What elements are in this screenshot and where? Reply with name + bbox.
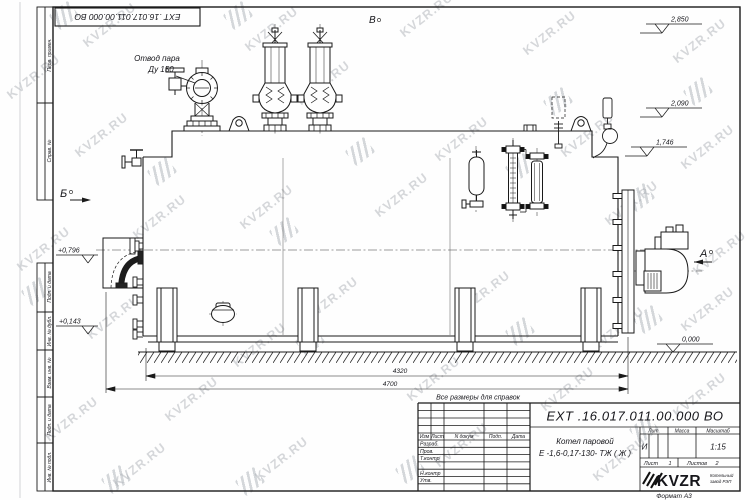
water-level-gauge [502, 140, 524, 219]
elevation-value: 2,090 [670, 101, 689, 108]
steam-outlet-label: Отвод пара Ду 150 [134, 54, 195, 83]
steam-outlet-valve [166, 68, 220, 131]
frame-side-labels: Перв. примен. Справ. № Подп. и дата Инв.… [47, 38, 53, 482]
brand-subtitle: завод РЭП [709, 479, 732, 484]
manhole [212, 303, 235, 323]
sight-vessel [462, 150, 484, 208]
side-label: Инв. № подл. [47, 451, 53, 482]
elevation-value: 2,850 [670, 17, 689, 24]
elevation-value: 1,746 [656, 140, 674, 147]
brand-name: KVZR [657, 473, 701, 490]
side-label: Справ. № [47, 139, 53, 162]
rev-col-header: Подп. [489, 434, 502, 440]
rear-door [613, 190, 634, 333]
side-label: Подп. и дата [47, 404, 53, 436]
steam-label-line1: Отвод пара [134, 54, 180, 63]
scale-value: 1:15 [710, 443, 726, 452]
lifting-lug [571, 117, 591, 132]
elevation-value: 0,000 [682, 337, 700, 344]
view-label-b-left: Б [60, 188, 91, 203]
sheets-value: 2 [714, 461, 718, 467]
mass-header: Масса [675, 429, 690, 435]
side-label: Подп. и дата [47, 271, 53, 303]
sign-row-label: Разраб. [420, 442, 439, 448]
rear-burner [636, 225, 688, 293]
sign-row-label: Пров. [420, 449, 434, 455]
dimension-4320: 4320 [393, 368, 408, 375]
sheet-label: Лист [643, 461, 659, 467]
product-name-line1: Котел паровой [556, 437, 614, 446]
document-number: ЕХТ .16.017.011.00.000 ВО [546, 409, 723, 424]
safety-valve [253, 28, 297, 131]
ground-line [138, 352, 737, 363]
elevation-marks-left: +0,796 +0,143 [56, 248, 98, 335]
drawing-sheet: KVZR.RU KVZR.RU KVZR.RU KVZR.RU KVZR.RU … [0, 0, 750, 500]
scale-header: Масштаб [706, 429, 730, 435]
drum-top-fitting [524, 125, 536, 131]
top-inverted-stamp: ЕХТ .16.017.011.00.000 ВО [55, 8, 200, 26]
bottom-dimensions: 4320 4700 [106, 292, 628, 394]
reference-note: Все размеры для справок [436, 394, 521, 402]
lifting-lug [229, 117, 249, 132]
side-label: Перв. примен. [47, 38, 53, 71]
rev-col-header: Дата [511, 434, 525, 440]
sign-row-label: Утв. [420, 478, 432, 484]
rev-col-header: N докум [455, 434, 474, 440]
view-b-letter: Б [60, 188, 67, 200]
boiler-general-view-drawing: Перв. примен. Справ. № Подп. и дата Инв.… [0, 0, 750, 500]
title-block-text: Изм Лист N докум Подп. Дата Разраб. Пров… [420, 409, 734, 500]
view-label-a-right: А [694, 248, 713, 265]
company-logo: KVZR Котельный завод РЭП [643, 472, 734, 490]
front-top-valve [122, 150, 143, 168]
top-stamp-number: ЕХТ .16.017.011.00.000 ВО [74, 12, 180, 22]
sheet-value: 1 [668, 461, 671, 467]
dimension-4700: 4700 [383, 381, 398, 388]
rev-col-header: Изм [420, 434, 430, 440]
elevation-value: +0,143 [59, 319, 81, 326]
safety-valve [298, 28, 342, 131]
elevation-value: +0,796 [58, 248, 80, 255]
lit-value: И [642, 443, 648, 452]
flat-glass-gauge [520, 150, 548, 213]
side-label: Взам. инв. № [47, 357, 53, 389]
sign-row-label: Н.контр [420, 471, 441, 477]
elevation-mark-zero: 0,000 [657, 337, 713, 353]
sign-row-label: Т.контр [420, 456, 440, 462]
view-a-letter: А [699, 248, 707, 260]
format-note: Формат А3 [656, 493, 692, 500]
brand-subtitle: Котельный [710, 473, 734, 478]
steam-label-line2: Ду 150 [147, 65, 174, 74]
centerlines [96, 24, 702, 327]
view-v-letter: В [369, 15, 376, 26]
side-label: Инв. № дубл. [47, 316, 53, 347]
sheets-label: Листов [686, 461, 707, 467]
lit-header: Лит. [647, 429, 660, 435]
view-label-v-top: В [369, 15, 381, 26]
rev-col-header: Лист [430, 434, 444, 440]
elevation-marks-right: 2,850 2,090 1,746 [625, 17, 702, 157]
product-name-line2: Е -1,6-0,17-130- ТЖ ( Ж ) [539, 449, 631, 458]
